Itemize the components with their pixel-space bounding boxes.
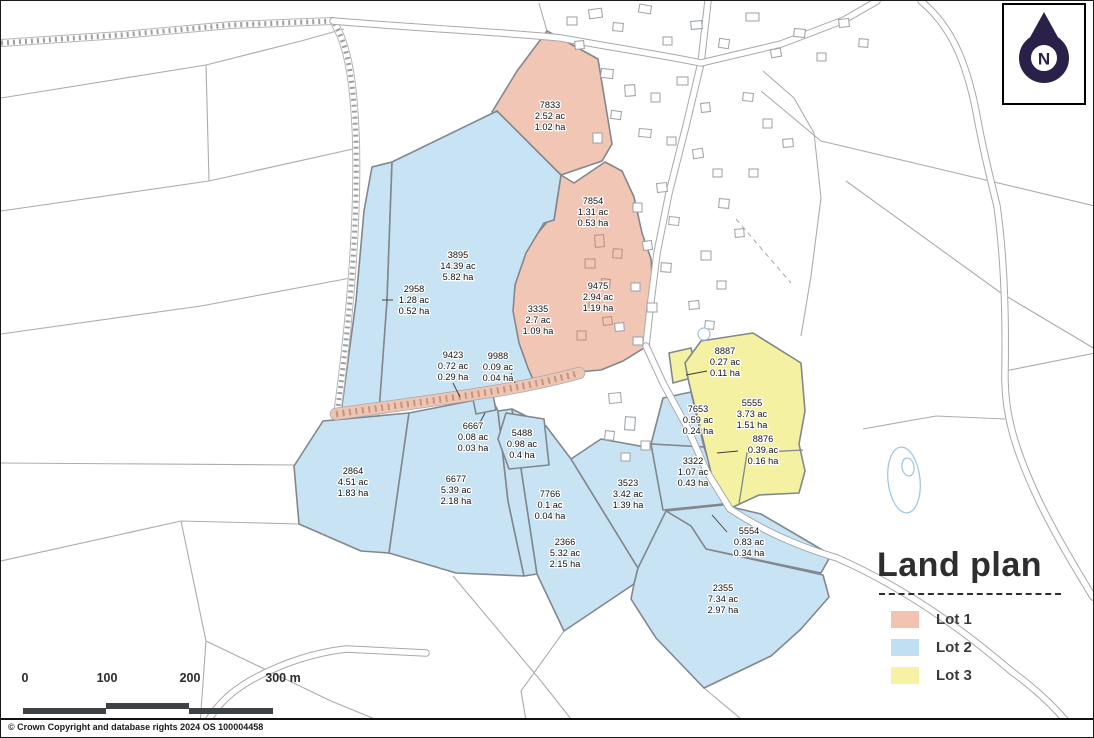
lot3-label: Lot 3: [936, 667, 972, 684]
building: [605, 431, 615, 441]
lot2-label: Lot 2: [936, 639, 972, 656]
legend-row-lot3: Lot 3: [891, 667, 1069, 684]
building: [719, 199, 730, 209]
building: [783, 139, 794, 148]
building: [701, 251, 711, 260]
building: [718, 38, 729, 48]
building: [663, 37, 672, 45]
building: [743, 92, 754, 101]
legend-row-lot1: Lot 1: [891, 611, 1069, 628]
building: [642, 240, 652, 250]
scale-tick-200: 200: [180, 671, 201, 685]
building: [692, 148, 703, 158]
building: [651, 93, 660, 102]
north-label: N: [1038, 50, 1050, 69]
lot2-swatch: [891, 639, 919, 656]
copyright-text: © Crown Copyright and database rights 20…: [8, 722, 263, 732]
building: [633, 203, 642, 212]
legend-row-lot2: Lot 2: [891, 639, 1069, 656]
building: [717, 281, 726, 289]
building: [641, 441, 650, 450]
scale-segment-3: [189, 708, 273, 714]
building: [746, 13, 759, 21]
building: [763, 119, 772, 128]
building: [621, 453, 630, 461]
building: [817, 53, 826, 61]
building: [794, 28, 806, 37]
building: [667, 137, 676, 145]
lot1-label: Lot 1: [936, 611, 972, 628]
building: [638, 4, 651, 14]
building: [735, 229, 745, 238]
building: [625, 85, 636, 97]
building: [613, 249, 623, 259]
legend: Lot 1 Lot 2 Lot 3: [891, 611, 1069, 684]
title-panel: Land plan Lot 1 Lot 2 Lot 3: [877, 547, 1069, 695]
building: [657, 183, 668, 193]
building: [691, 21, 703, 30]
building: [859, 39, 869, 48]
land-plan-page: 78332.52 ac1.02 ha78541.31 ac0.53 ha9475…: [0, 0, 1094, 738]
building: [577, 331, 586, 340]
title-divider: [879, 593, 1061, 595]
building: [610, 110, 621, 119]
building: [669, 216, 680, 225]
building: [839, 18, 850, 27]
building: [588, 8, 602, 19]
pond: [698, 328, 710, 340]
building: [615, 323, 625, 332]
building: [613, 23, 624, 32]
track-path: [1, 21, 356, 414]
pond: [885, 446, 924, 515]
building: [701, 103, 711, 113]
scale-segment-2: [106, 703, 189, 709]
building: [770, 48, 781, 58]
building: [585, 259, 595, 268]
building: [603, 317, 613, 326]
north-indicator: N: [1002, 3, 1086, 105]
building: [575, 41, 585, 50]
building: [689, 301, 700, 310]
building: [647, 303, 657, 312]
north-arrow-icon: N: [1004, 5, 1084, 103]
building: [633, 337, 643, 345]
scale-tick-0: 0: [22, 671, 29, 685]
lot3-swatch: [891, 667, 919, 684]
building: [631, 283, 640, 291]
building: [713, 169, 722, 177]
scale-segment-1: [23, 708, 106, 714]
lot1-swatch: [891, 611, 919, 628]
page-title: Land plan: [877, 547, 1069, 584]
scale-tick-300: 300 m: [265, 671, 300, 685]
track-path: [1, 21, 356, 414]
building: [639, 128, 652, 137]
building: [601, 68, 614, 78]
building: [567, 17, 577, 25]
building: [609, 392, 622, 403]
building: [625, 417, 636, 431]
scale-tick-100: 100: [97, 671, 118, 685]
building: [677, 77, 688, 85]
scale-bar: 0 100 200 300 m: [19, 671, 299, 717]
building: [593, 133, 602, 143]
track-path: [1, 21, 356, 414]
building: [595, 235, 605, 248]
building: [661, 263, 672, 273]
building: [749, 169, 758, 177]
